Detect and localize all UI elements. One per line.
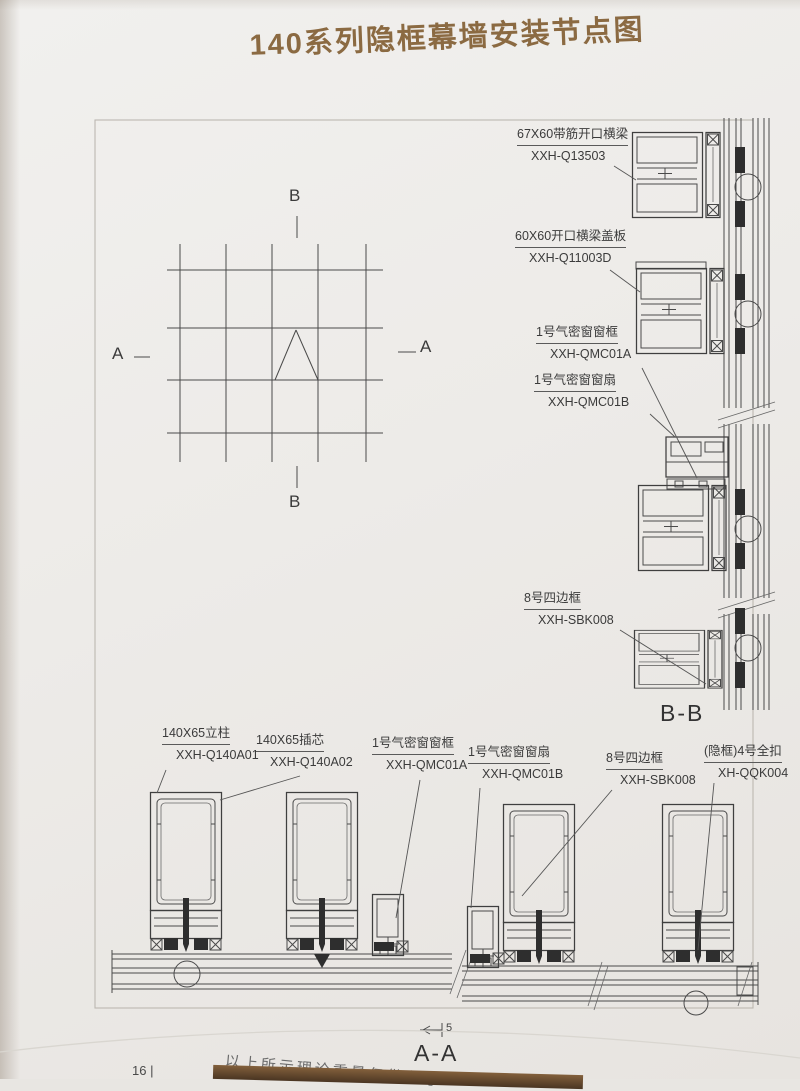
elevation-grid <box>134 216 416 488</box>
part-code: XXH-Q140A02 <box>256 752 353 772</box>
section-aa-drawing <box>112 793 758 1038</box>
bb-part-label-window-frame: 1号气密窗窗框 XXH-QMC01A <box>536 322 631 364</box>
gasket-circles-aa <box>174 961 708 1015</box>
part-code: XXH-Q140A01 <box>162 745 259 765</box>
diagram-border <box>95 120 753 1008</box>
aa-part-label-window-sash: 1号气密窗窗扇 XXH-QMC01B <box>468 742 563 784</box>
part-code: XH-QQK004 <box>704 763 788 783</box>
aa-part-label-mullion: 140X65立柱 XXH-Q140A01 <box>162 723 259 765</box>
part-name: 1号气密窗窗框 <box>536 322 618 344</box>
part-name: 8号四边框 <box>524 588 581 610</box>
part-code: XXH-QMC01B <box>534 392 629 412</box>
aa-part-label-insert-core: 140X65插芯 XXH-Q140A02 <box>256 730 353 772</box>
section-title-bb: B-B <box>660 700 704 727</box>
part-name: (隐框)4号全扣 <box>704 741 782 763</box>
part-name: 60X60开口横梁盖板 <box>515 226 626 248</box>
technical-drawing-canvas <box>0 0 800 1079</box>
opening-symbol <box>275 330 296 380</box>
part-name: 67X60带筋开口横梁 <box>517 124 628 146</box>
part-code: XXH-QMC01B <box>468 764 563 784</box>
bb-part-label-transom: 67X60带筋开口横梁 XXH-Q13503 <box>517 124 628 166</box>
gasket-circles-bb <box>735 174 761 661</box>
bb-part-label-subframe: 8号四边框 XXH-SBK008 <box>524 588 614 630</box>
aa-part-label-snap-cap: (隐框)4号全扣 XH-QQK004 <box>704 741 788 783</box>
anchor-wedge <box>314 954 330 968</box>
aa-part-label-window-frame: 1号气密窗窗框 XXH-QMC01A <box>372 733 467 775</box>
part-name: 1号气密窗窗框 <box>372 733 454 755</box>
aa-part-label-subframe: 8号四边框 XXH-SBK008 <box>606 748 696 790</box>
part-name: 8号四边框 <box>606 748 663 770</box>
leader-lines <box>157 166 714 950</box>
part-code: XXH-QMC01A <box>372 755 467 775</box>
part-code: XXH-SBK008 <box>606 770 696 790</box>
elevation-marker-a-left: A <box>112 344 123 364</box>
bb-part-label-window-sash: 1号气密窗窗扇 XXH-QMC01B <box>534 370 629 412</box>
page-curl-line <box>0 1030 800 1058</box>
elevation-marker-a-right: A <box>420 337 431 357</box>
part-code: XXH-QMC01A <box>536 344 631 364</box>
section-title-aa: A-A <box>414 1040 458 1067</box>
part-code: XXH-Q13503 <box>517 146 628 166</box>
page-number: 16 | <box>132 1063 153 1078</box>
part-name: 140X65插芯 <box>256 730 324 752</box>
part-name: 1号气密窗窗扇 <box>534 370 616 392</box>
elevation-marker-b-top: B <box>289 186 300 206</box>
part-code: XXH-SBK008 <box>524 610 614 630</box>
part-name: 140X65立柱 <box>162 723 230 745</box>
dimension-marker <box>420 1023 442 1037</box>
part-name: 1号气密窗窗扇 <box>468 742 550 764</box>
part-code: XXH-Q11003D <box>515 248 626 268</box>
bb-part-label-cover: 60X60开口横梁盖板 XXH-Q11003D <box>515 226 626 268</box>
elevation-marker-b-bottom: B <box>289 492 300 512</box>
section-bb-drawing <box>633 118 776 710</box>
dimension-value: 5 <box>446 1022 452 1034</box>
